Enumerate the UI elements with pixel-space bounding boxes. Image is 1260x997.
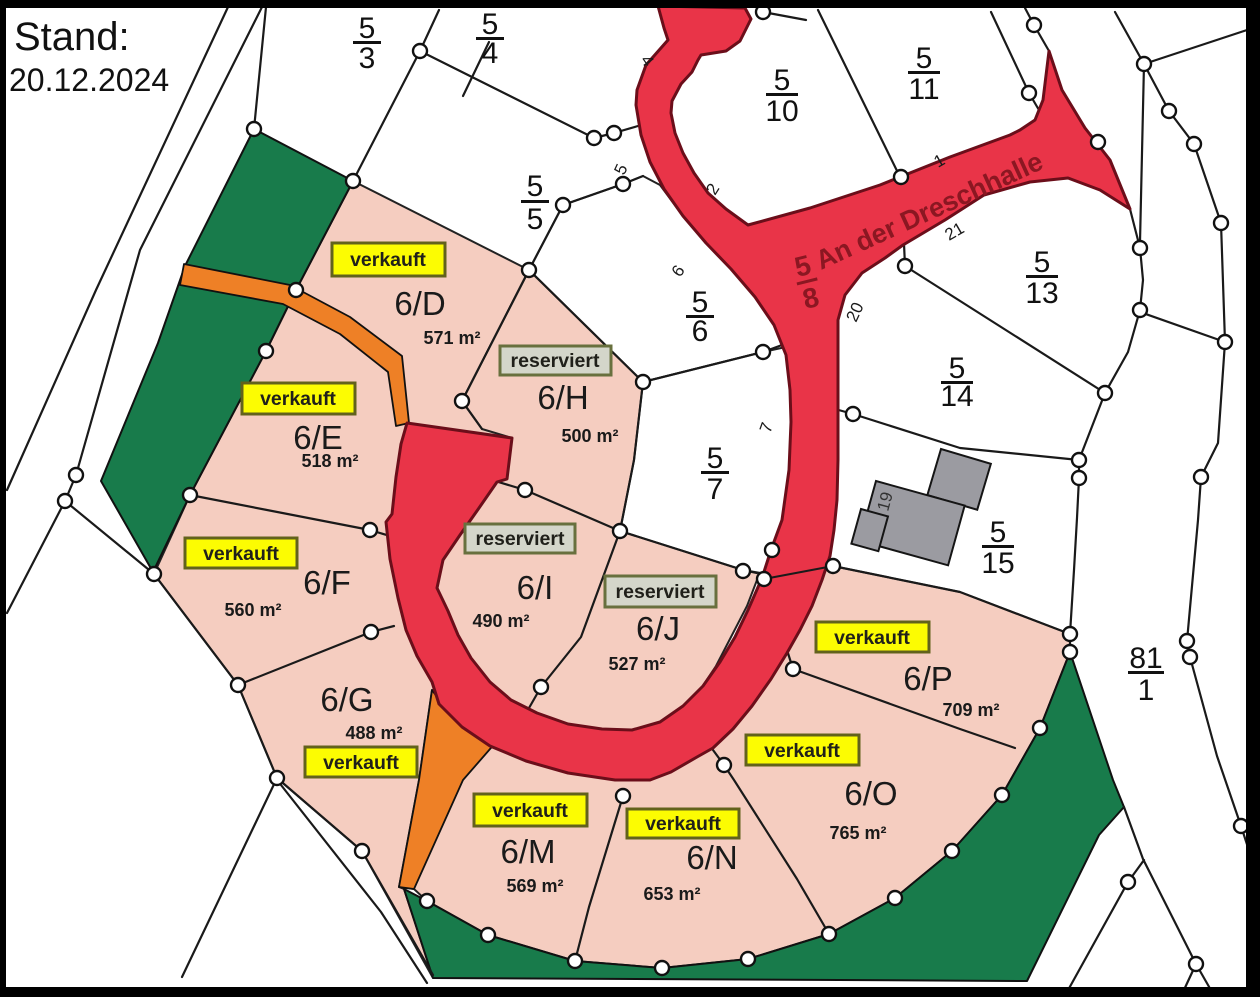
svg-text:6/D: 6/D [394,285,445,322]
svg-text:verkauft: verkauft [834,627,910,649]
svg-text:verkauft: verkauft [260,388,336,410]
svg-text:709 m²: 709 m² [942,700,999,720]
svg-text:4: 4 [482,37,499,70]
svg-text:560 m²: 560 m² [224,600,281,620]
svg-text:verkauft: verkauft [492,800,568,822]
svg-text:5: 5 [916,42,933,75]
svg-text:5: 5 [1034,246,1051,279]
svg-text:518 m²: 518 m² [301,451,358,471]
svg-text:verkauft: verkauft [764,740,840,762]
svg-text:81: 81 [1129,642,1162,675]
svg-text:15: 15 [981,547,1014,580]
svg-text:6: 6 [692,315,709,348]
svg-text:14: 14 [940,380,973,413]
svg-text:verkauft: verkauft [645,813,721,835]
svg-text:5: 5 [527,170,544,203]
svg-text:5: 5 [527,203,544,236]
svg-text:20.12.2024: 20.12.2024 [9,62,169,98]
svg-text:5: 5 [359,12,376,45]
svg-text:6/N: 6/N [686,839,737,876]
svg-text:7: 7 [707,473,724,506]
svg-text:reserviert: reserviert [476,528,565,550]
svg-text:6/F: 6/F [303,564,351,601]
svg-text:6/H: 6/H [537,379,588,416]
svg-text:490 m²: 490 m² [472,611,529,631]
svg-text:5: 5 [707,442,724,475]
svg-text:verkauft: verkauft [350,249,426,271]
svg-text:527 m²: 527 m² [608,654,665,674]
svg-text:6/O: 6/O [844,775,897,812]
svg-text:765 m²: 765 m² [829,823,886,843]
svg-text:5: 5 [990,516,1007,549]
svg-text:10: 10 [765,95,798,128]
svg-text:reserviert: reserviert [616,581,705,603]
svg-text:6/I: 6/I [517,569,554,606]
svg-text:6/G: 6/G [320,681,373,718]
svg-text:11: 11 [908,73,939,106]
svg-text:569 m²: 569 m² [506,876,563,896]
svg-text:13: 13 [1025,277,1058,310]
svg-text:Stand:: Stand: [14,15,130,59]
svg-text:6/M: 6/M [500,833,555,870]
svg-text:6/P: 6/P [903,660,953,697]
svg-text:1: 1 [1138,674,1155,707]
svg-text:653 m²: 653 m² [643,884,700,904]
svg-text:3: 3 [359,42,376,75]
svg-text:500 m²: 500 m² [561,426,618,446]
svg-text:verkauft: verkauft [203,543,279,565]
svg-text:verkauft: verkauft [323,752,399,774]
svg-text:reserviert: reserviert [511,350,600,372]
svg-text:571 m²: 571 m² [423,328,480,348]
svg-text:488 m²: 488 m² [345,723,402,743]
svg-text:6/J: 6/J [636,610,680,647]
svg-text:5: 5 [774,64,791,97]
